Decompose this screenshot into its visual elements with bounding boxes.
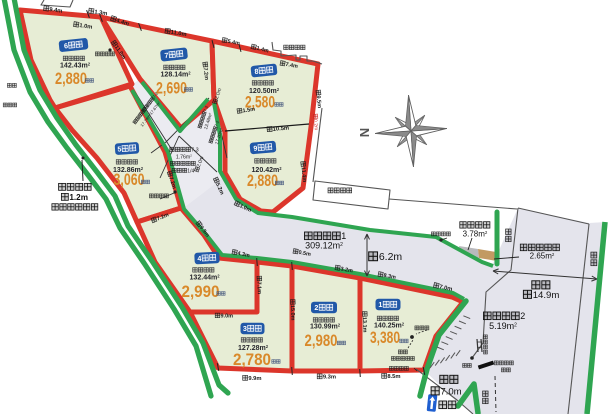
svg-text:5.19m2: 5.19m2 [489, 321, 517, 331]
svg-text:128.14m2: 128.14m2 [161, 70, 192, 79]
svg-text:14.9m: 14.9m [533, 290, 560, 301]
svg-text:2,880: 2,880 [247, 172, 278, 190]
svg-text:9.9m: 9.9m [248, 376, 261, 382]
svg-text:5: 5 [117, 144, 122, 153]
svg-text:9: 9 [253, 144, 258, 153]
svg-text:7.0m: 7.0m [440, 386, 461, 397]
svg-text:142.43m2: 142.43m2 [60, 61, 91, 70]
svg-text:2.65m2: 2.65m2 [530, 251, 555, 260]
svg-text:N: N [357, 128, 372, 137]
svg-text:0.2m: 0.2m [312, 119, 319, 131]
svg-text:130.99m2: 130.99m2 [310, 322, 341, 331]
svg-text:8.5m: 8.5m [387, 374, 400, 380]
svg-text:6.2m: 6.2m [379, 251, 403, 263]
svg-text:9.3m: 9.3m [323, 375, 336, 381]
svg-text:15.0m: 15.0m [289, 305, 296, 321]
svg-text:1/4: 1/4 [187, 168, 194, 174]
svg-text:9.0m: 9.0m [221, 313, 234, 319]
svg-text:3,380: 3,380 [370, 329, 400, 347]
svg-text:1.2m: 1.2m [69, 193, 88, 202]
svg-text:2,880: 2,880 [55, 70, 87, 88]
svg-text:3: 3 [243, 324, 247, 333]
svg-text:2,690: 2,690 [156, 79, 187, 97]
svg-text:1.76m2: 1.76m2 [176, 154, 192, 161]
svg-text:1: 1 [378, 300, 382, 309]
svg-text:1: 1 [341, 231, 346, 241]
svg-text:4: 4 [197, 254, 201, 263]
svg-text:132.44m2: 132.44m2 [190, 273, 221, 282]
svg-text:7-3: 7-3 [191, 147, 199, 153]
svg-text:13.1m: 13.1m [361, 317, 368, 333]
svg-text:3.78m2: 3.78m2 [463, 229, 488, 238]
svg-text:7.1m: 7.1m [255, 281, 261, 294]
svg-text:2: 2 [520, 311, 525, 321]
svg-text:2,780: 2,780 [233, 351, 271, 369]
svg-text:309.12m2: 309.12m2 [305, 241, 343, 251]
svg-text:3,060: 3,060 [114, 171, 145, 189]
svg-text:2,980: 2,980 [305, 332, 338, 350]
svg-text:2: 2 [314, 303, 318, 312]
svg-text:2,990: 2,990 [182, 283, 220, 301]
